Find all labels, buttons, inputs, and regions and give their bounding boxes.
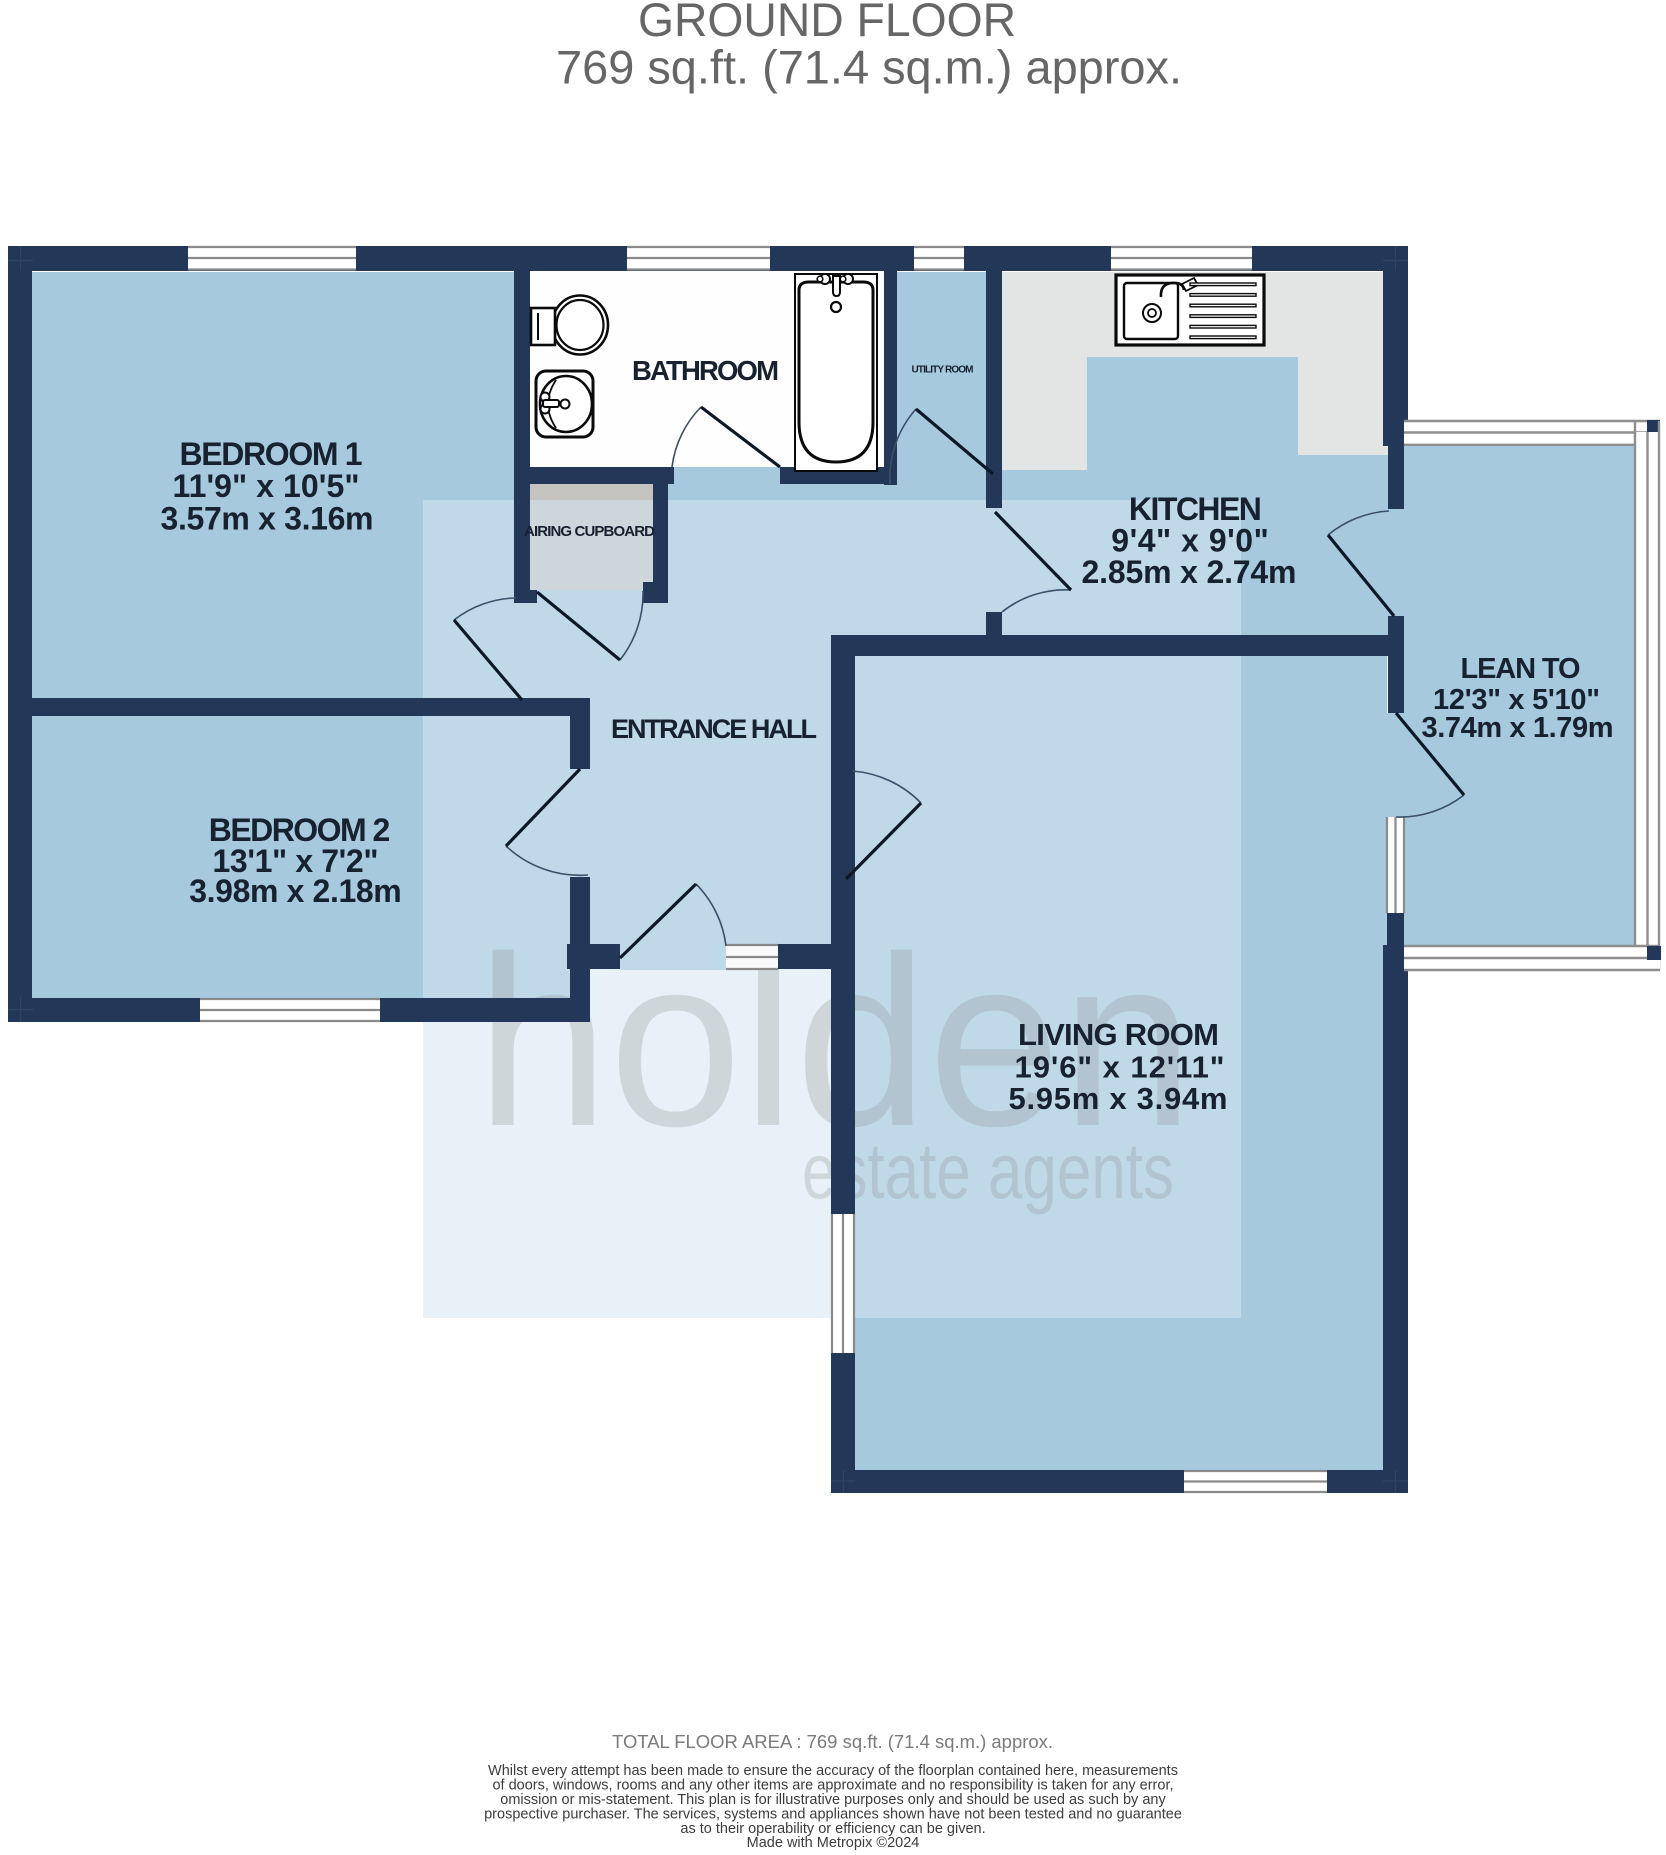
svg-text:11'9" x 10'5": 11'9" x 10'5": [173, 468, 360, 504]
svg-text:estate agents: estate agents: [802, 1126, 1174, 1215]
svg-text:769 sq.ft. (71.4 sq.m.) approx: 769 sq.ft. (71.4 sq.m.) approx.: [556, 41, 1182, 94]
svg-text:3.57m x 3.16m: 3.57m x 3.16m: [161, 501, 374, 537]
svg-text:19'6" x 12'11": 19'6" x 12'11": [1015, 1050, 1225, 1085]
svg-text:ENTRANCE HALL: ENTRANCE HALL: [611, 714, 817, 744]
svg-text:3.74m x 1.79m: 3.74m x 1.79m: [1422, 712, 1614, 744]
svg-text:BEDROOM 1: BEDROOM 1: [180, 436, 363, 472]
svg-text:BATHROOM: BATHROOM: [632, 355, 779, 386]
svg-text:Made with Metropix ©2024: Made with Metropix ©2024: [747, 1835, 920, 1851]
svg-text:UTILITY ROOM: UTILITY ROOM: [912, 365, 974, 376]
svg-text:3.98m x 2.18m: 3.98m x 2.18m: [189, 873, 402, 909]
svg-text:LIVING ROOM: LIVING ROOM: [1018, 1017, 1219, 1052]
svg-text:TOTAL FLOOR AREA : 769 sq.ft.: TOTAL FLOOR AREA : 769 sq.ft. (71.4 sq.m…: [612, 1731, 1053, 1752]
svg-text:5.95m x 3.94m: 5.95m x 3.94m: [1009, 1081, 1228, 1116]
svg-text:LEAN TO: LEAN TO: [1461, 653, 1581, 685]
svg-text:GROUND FLOOR: GROUND FLOOR: [638, 0, 1016, 46]
svg-text:AIRING CUPBOARD: AIRING CUPBOARD: [524, 523, 655, 540]
svg-text:2.85m x 2.74m: 2.85m x 2.74m: [1082, 554, 1297, 590]
